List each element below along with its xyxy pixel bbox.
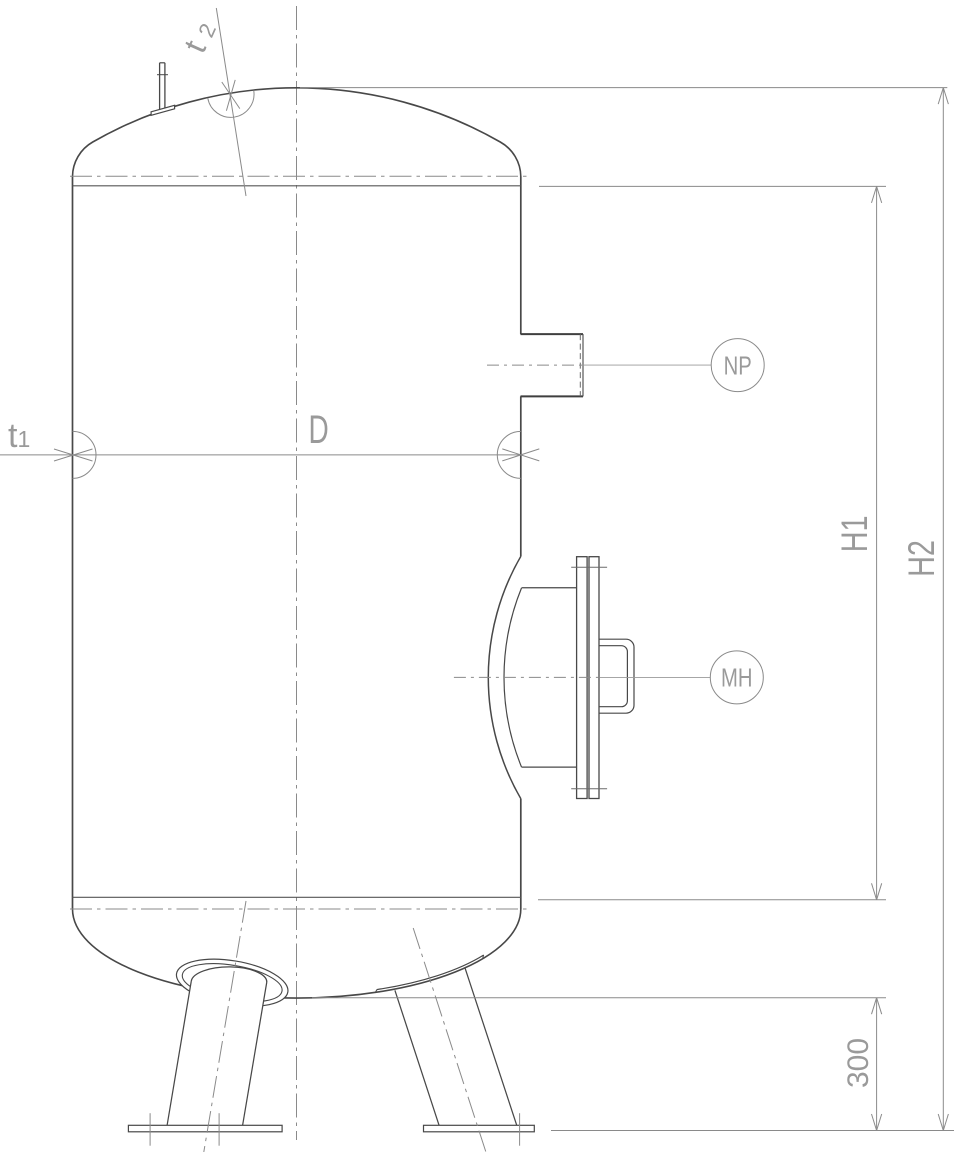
- svg-text:D: D: [309, 408, 329, 452]
- svg-text:t1: t1: [8, 417, 30, 455]
- svg-text:300: 300: [842, 1038, 875, 1088]
- svg-text:MH: MH: [721, 663, 753, 692]
- svg-text:t: t: [177, 35, 214, 58]
- svg-text:2: 2: [193, 20, 221, 41]
- svg-text:NP: NP: [724, 351, 752, 380]
- svg-text:H2: H2: [902, 540, 943, 577]
- svg-text:H1: H1: [835, 515, 876, 552]
